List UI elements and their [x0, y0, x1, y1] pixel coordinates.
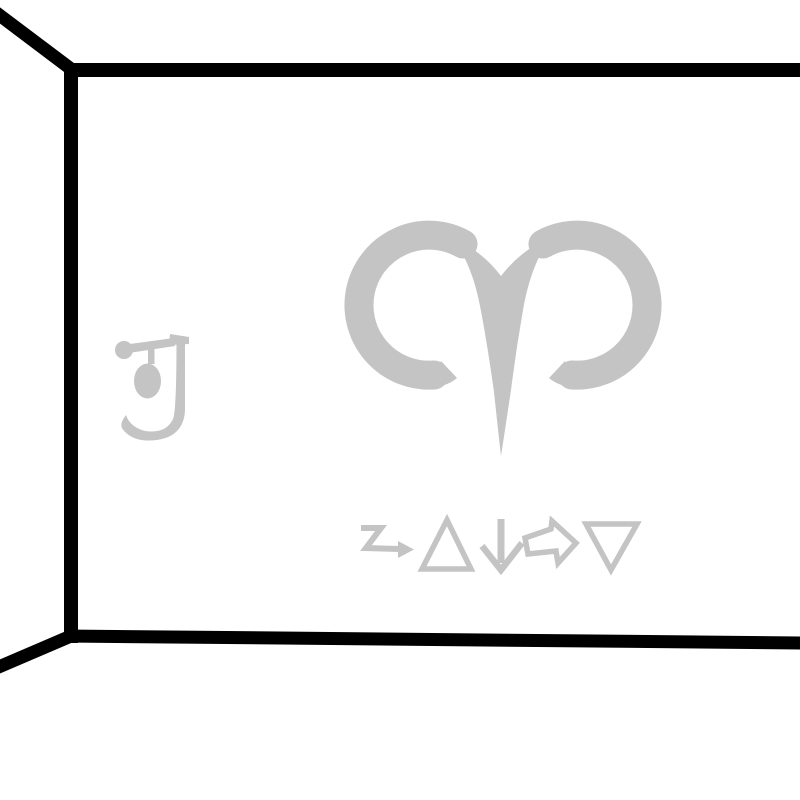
wall-bottom-edge	[65, 636, 800, 643]
j-glyph-pendant-oval	[134, 364, 161, 399]
background	[0, 0, 800, 800]
j-glyph-pendant-stem	[148, 348, 155, 364]
drawing-canvas	[0, 0, 800, 800]
scene-root	[0, 0, 800, 800]
